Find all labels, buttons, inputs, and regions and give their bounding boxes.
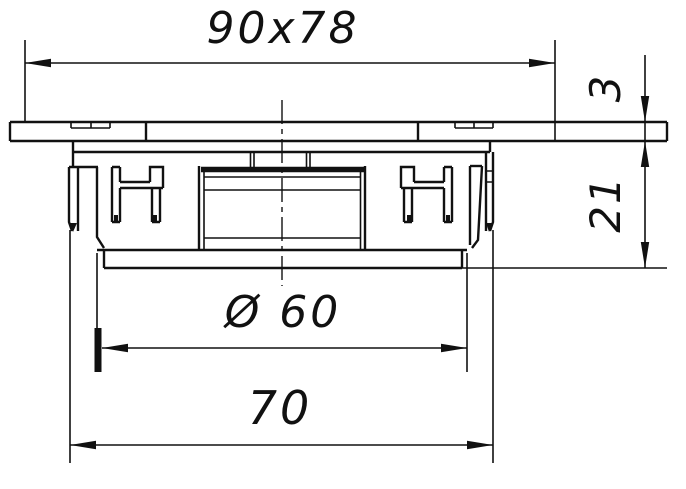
arrowhead [441, 344, 467, 352]
body-depth-label: 21 [581, 175, 630, 232]
flange-thickness-label: 3 [581, 74, 630, 103]
right-contact-clip [401, 167, 452, 222]
dimension-flange-thickness: 3 [581, 55, 649, 268]
arrowhead [467, 441, 493, 449]
left-snap-hook [69, 152, 98, 232]
flange-size-label: 90x78 [206, 3, 359, 54]
technical-drawing: 90x78 3 21 Ø 60 70 [0, 0, 686, 489]
drawing-canvas: 90x78 3 21 Ø 60 70 [0, 0, 686, 489]
flange-outline [10, 122, 667, 141]
left-contact-clip [112, 167, 163, 222]
diameter-label: Ø 60 [223, 287, 342, 338]
mount-posts [251, 152, 311, 167]
arrowhead [102, 344, 128, 352]
right-body-wall [470, 166, 482, 248]
arrowhead [641, 141, 649, 167]
left-body-wall [97, 167, 104, 248]
arrowhead [641, 96, 649, 122]
arrowhead [25, 59, 51, 67]
arrowhead [641, 242, 649, 268]
right-snap-hook [486, 152, 493, 232]
mounting-span-label: 70 [248, 381, 313, 435]
datum-bar [95, 328, 102, 372]
dimension-diameter: Ø 60 [95, 253, 468, 372]
arrowhead [529, 59, 555, 67]
dimension-flange-size: 90x78 [25, 3, 555, 141]
arrowhead [70, 441, 96, 449]
